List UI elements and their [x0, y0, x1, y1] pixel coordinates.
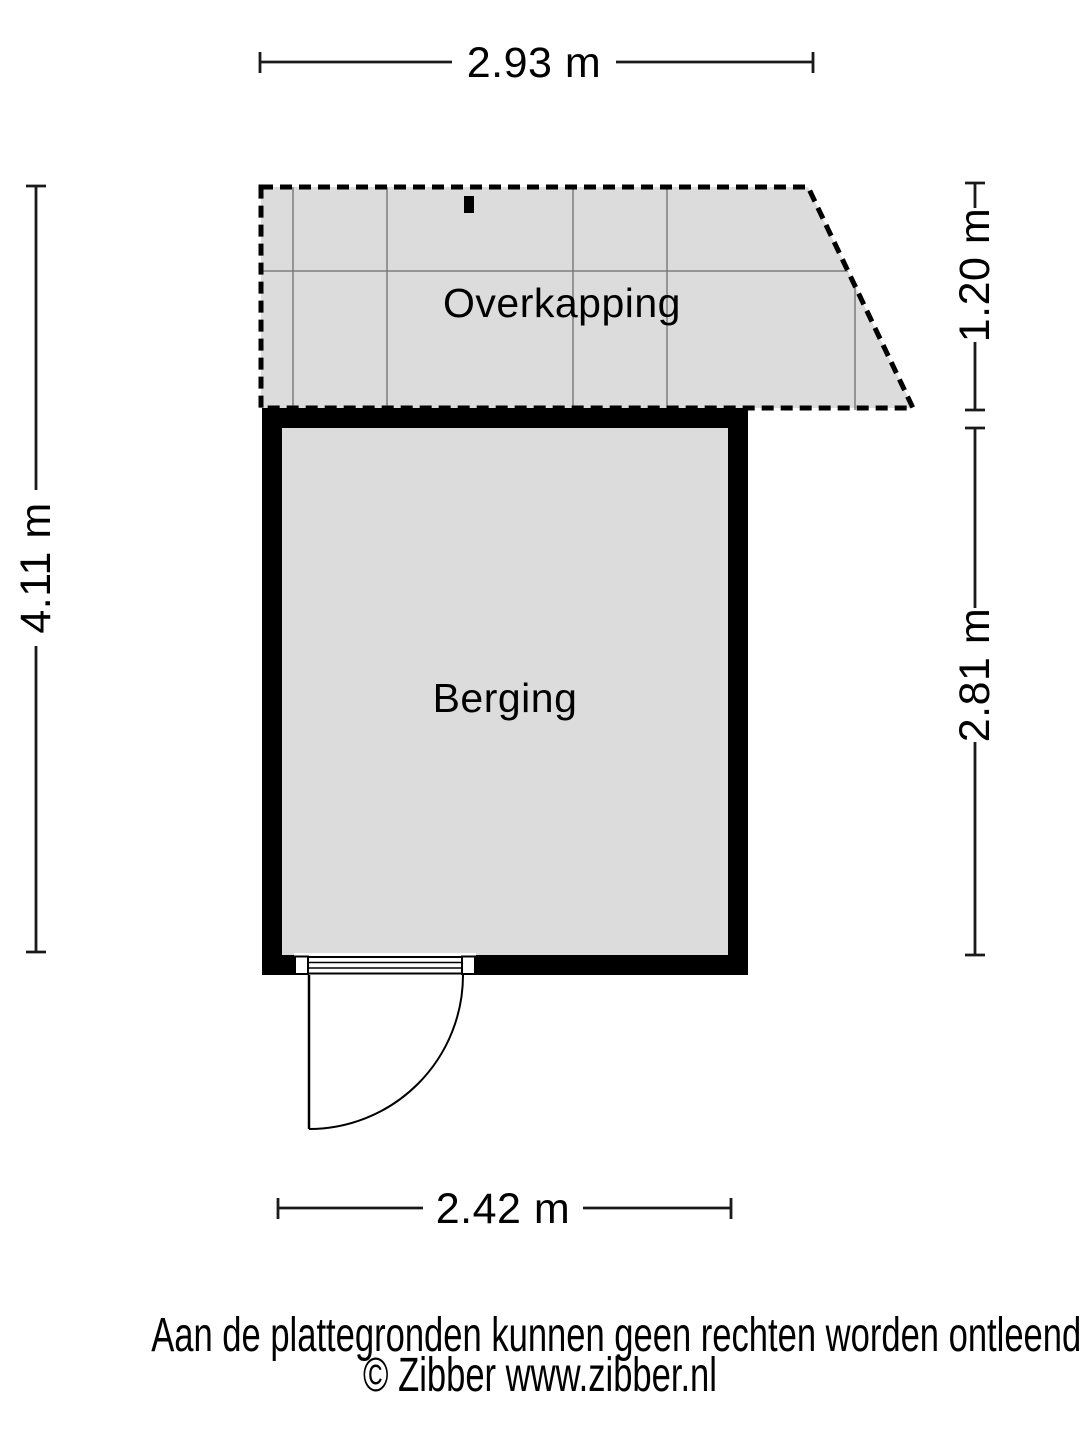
door-threshold [308, 957, 462, 974]
door-jamb-left [295, 957, 308, 975]
dimension-right-upper-label: 1.20 m [951, 208, 999, 342]
dimension-bottom-label: 2.42 m [436, 1185, 570, 1233]
room-label-berging: Berging [433, 675, 578, 721]
floorplan-page: 2.93 m 4.11 m 1.20 m 2.81 m [0, 0, 1080, 1440]
room-label-overkapping: Overkapping [443, 280, 681, 326]
dimension-top-label: 2.93 m [467, 39, 601, 87]
door-jamb-right [462, 957, 475, 975]
dimension-right-lower-label: 2.81 m [951, 608, 999, 742]
door-swing-arc [309, 975, 463, 1129]
floorplan-drawing: 2.93 m 4.11 m 1.20 m 2.81 m [0, 0, 1080, 1260]
post-marker [464, 196, 474, 213]
footer-credit: © Zibber www.zibber.nl [151, 1352, 929, 1400]
berging-room [262, 408, 748, 1129]
dimension-left-label: 4.11 m [12, 502, 60, 633]
